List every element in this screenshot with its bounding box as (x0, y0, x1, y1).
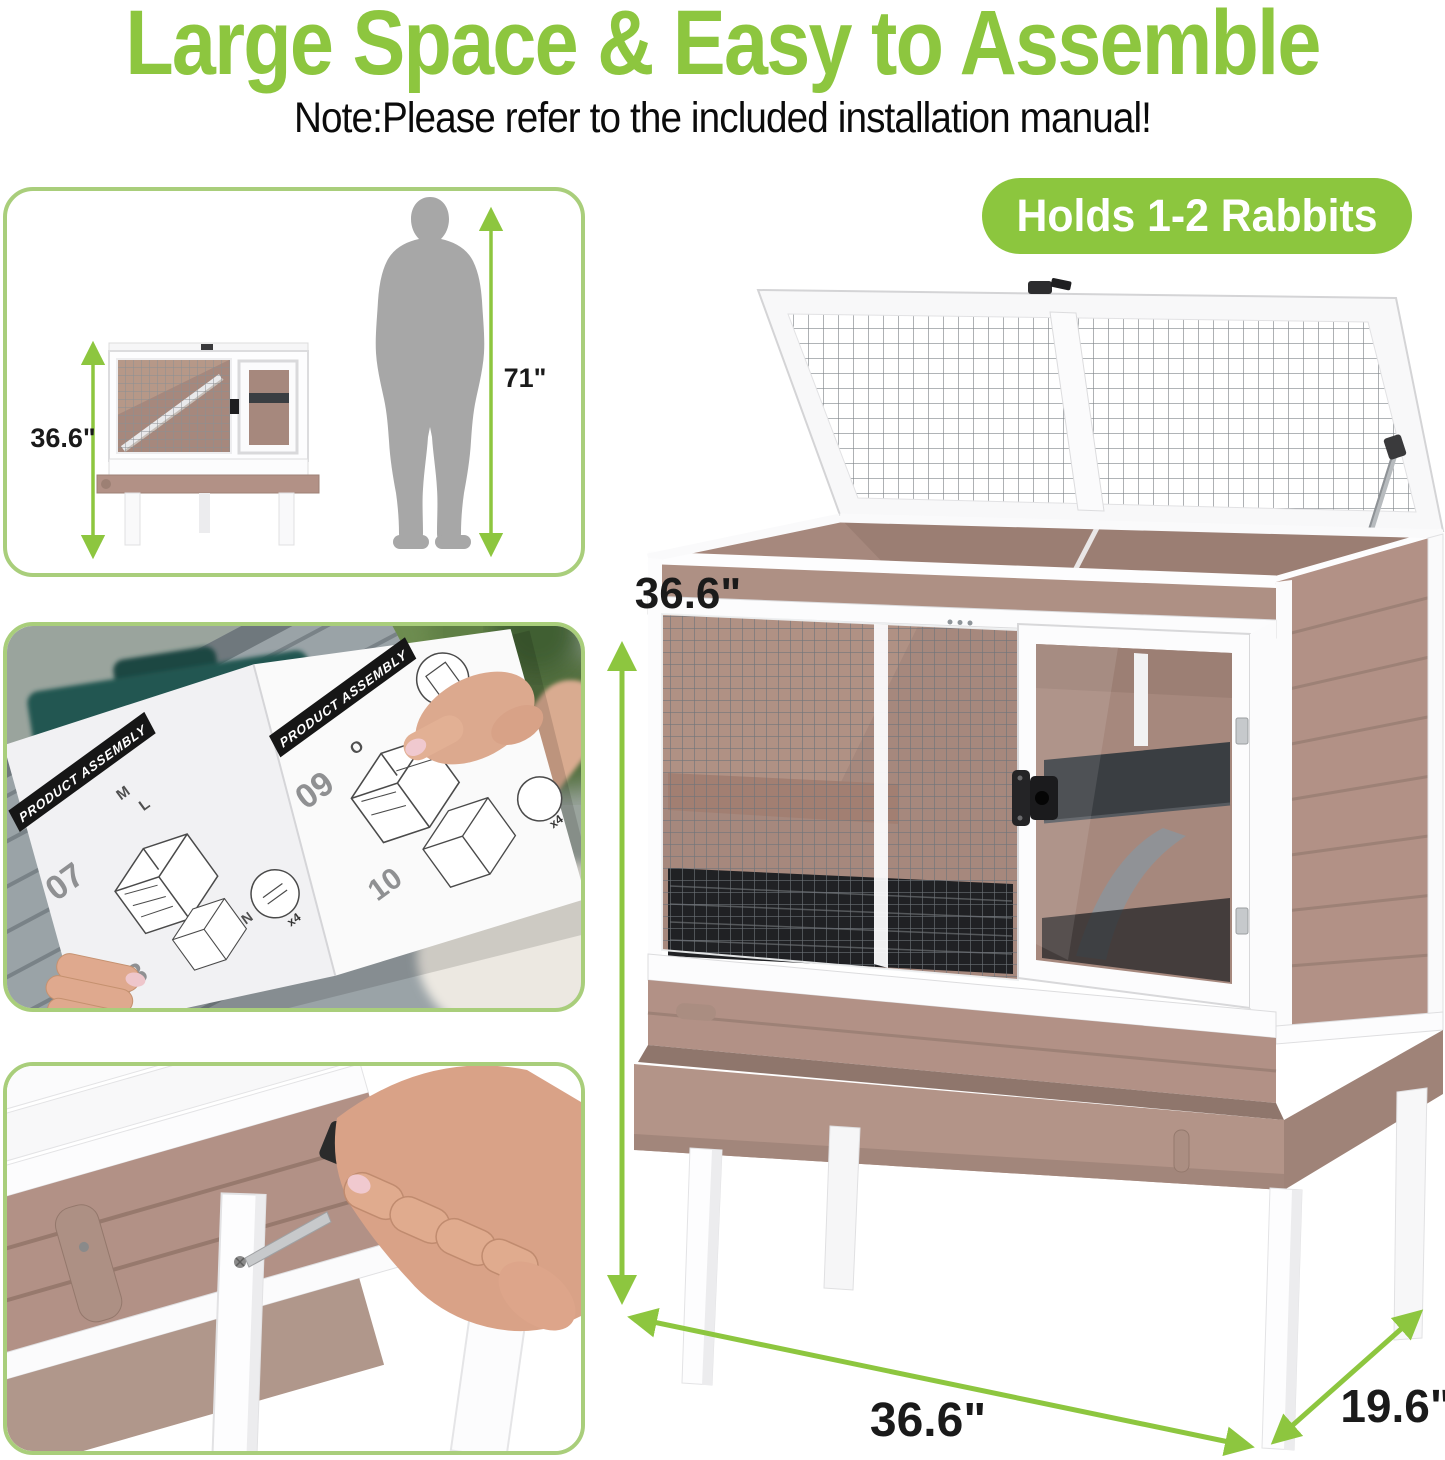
capacity-badge-label: Holds 1-2 Rabbits (1016, 190, 1377, 242)
mini-hutch-illustration (97, 343, 319, 545)
lid-latch (1028, 278, 1072, 294)
front-mesh-section (662, 614, 1018, 980)
screwdriver-panel (3, 1062, 585, 1455)
person-height-label: 71" (504, 363, 547, 393)
size-comparison-panel: 36.6" (3, 187, 585, 577)
manual-panel: PRODUCT ASSEMBLY 07 M L 08 (3, 622, 585, 1012)
side-wood-panel (1276, 534, 1443, 1044)
assembly-closeup-photo (7, 1066, 581, 1451)
mini-hutch-door (239, 361, 297, 453)
mini-hutch-tray (97, 475, 319, 493)
size-comparison-illustration: 36.6" (7, 191, 581, 573)
mini-hutch-mesh-section (117, 359, 231, 453)
mini-hutch-latch (230, 399, 239, 414)
page-title: Large Space & Easy to Assemble (101, 0, 1344, 92)
tray-knob-center (1174, 1130, 1189, 1172)
door-hinge-top (1236, 718, 1248, 744)
front-leg (213, 1193, 266, 1451)
product-infographic: Large Space & Easy to Assemble Note:Plea… (0, 0, 1445, 1460)
door-hinge-bottom (1236, 908, 1248, 934)
height-label: 36.6" (635, 569, 742, 618)
door-latch (1012, 770, 1058, 826)
person-silhouette (376, 197, 485, 549)
manual-photo: PRODUCT ASSEMBLY 07 M L 08 (7, 626, 581, 1008)
hutch-height-label: 36.6" (30, 423, 95, 453)
depth-label: 19.6" (1340, 1380, 1445, 1432)
main-product-photo: 36.6" 36.6" 19.6" (598, 268, 1445, 1460)
page-note: Note:Please refer to the included instal… (72, 94, 1373, 143)
width-label: 36.6" (870, 1394, 986, 1447)
tray-knob-left (675, 1003, 716, 1022)
capacity-badge: Holds 1-2 Rabbits (982, 178, 1412, 254)
cage-front (648, 558, 1276, 1103)
